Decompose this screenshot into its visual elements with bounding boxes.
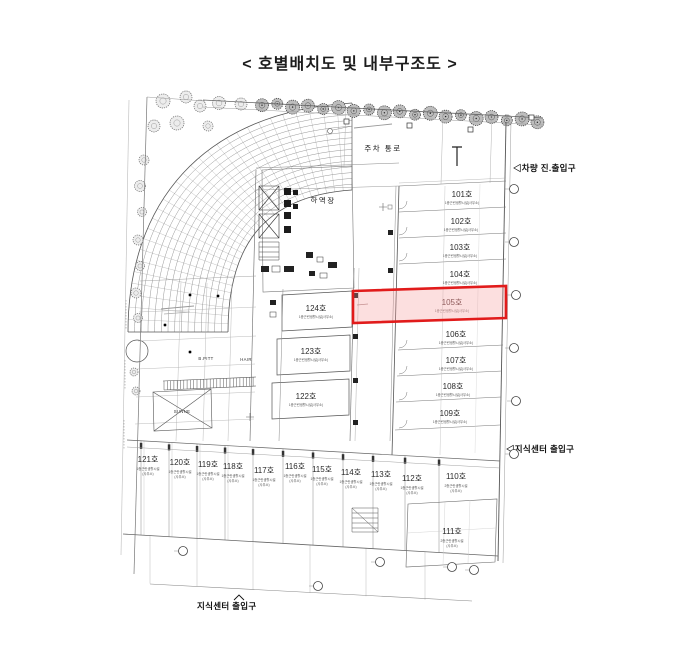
unit-121-sublabel: 1종근린생활시설 — [136, 466, 159, 471]
unit-114-label: 114호 — [341, 468, 361, 477]
unit-104-label: 104호 — [450, 270, 471, 279]
tenant-bpitt-label: B.PITT — [198, 356, 213, 361]
unit-113-label: 113호 — [371, 470, 391, 479]
unit-121-label: 121호 — [138, 455, 159, 464]
unit-110-sublabel2: (사무소) — [450, 488, 461, 493]
tenant-sunne-label: SUNNE — [174, 409, 191, 414]
unit-120-label: 120호 — [170, 458, 191, 467]
unit-110-sublabel: 2종근린생활시설 — [444, 483, 467, 488]
unit-118-sublabel: 1종근린생활시설 — [221, 473, 244, 478]
unit-111-sublabel2: (사무소) — [446, 543, 457, 548]
unit-124-label: 124호 — [306, 304, 327, 313]
unit-119-label: 119호 — [198, 460, 218, 469]
unit-122-sublabel: 1종근린생활시설(사무소) — [289, 402, 323, 407]
parking-corridor-label: 주차 통로 — [364, 144, 401, 153]
unit-114-sublabel2: (사무소) — [345, 484, 356, 489]
site-decoration — [126, 91, 544, 600]
unit-104-sublabel: 1종근린생활시설(사무소) — [443, 280, 477, 285]
unit-117-label: 117호 — [254, 466, 274, 475]
unit-120-sublabel2: (사무소) — [174, 474, 185, 479]
unit-114-sublabel: 1종근린생활시설 — [339, 479, 362, 484]
unit-116-sublabel2: (사무소) — [289, 478, 300, 483]
unit-101-sublabel: 1종근린생활시설(사무소) — [445, 200, 479, 205]
unit-121-sublabel2: (사무소) — [142, 471, 153, 476]
unit-106-label: 106호 — [446, 330, 467, 339]
unit-115-sublabel: 1종근린생활시설 — [310, 476, 333, 481]
unit-112-sublabel2: (사무소) — [406, 490, 417, 495]
floorplan-drawing: 주차 통로 하역장 101호 1종근린생활시설(사무소) 102호 1종근린생활… — [0, 0, 700, 670]
unit-116-sublabel: 1종근린생활시설 — [283, 473, 306, 478]
unit-115-label: 115호 — [312, 465, 332, 474]
unit-101-label: 101호 — [452, 190, 473, 199]
vehicle-entrance-label: ◁차량 진.출입구 — [513, 163, 576, 173]
unit-118-label: 118호 — [223, 462, 243, 471]
unit-117-sublabel: 1종근린생활시설 — [252, 477, 275, 482]
unit-113-sublabel: 1종근린생활시설 — [369, 481, 392, 486]
unit-123-sublabel: 1종근린생활시설(사무소) — [294, 357, 328, 362]
unit-118-sublabel2: (사무소) — [227, 478, 238, 483]
unit-108-sublabel: 1종근린생활시설(사무소) — [436, 392, 470, 397]
unit-119-sublabel: 1종근린생활시설 — [196, 471, 219, 476]
center-entrance-bottom-label: 지식센터 출입구 — [197, 601, 257, 611]
floorplan-page: < 호별배치도 및 내부구조도 > — [0, 0, 700, 670]
unit-102-label: 102호 — [451, 217, 472, 226]
unit-120-sublabel: 1종근린생활시설 — [168, 469, 191, 474]
unit-105-highlight[interactable] — [353, 286, 506, 323]
unit-105-label: 105호 — [442, 298, 463, 307]
unit-109-label: 109호 — [440, 409, 461, 418]
unit-105-sublabel: 1종근린생활시설(사무소) — [435, 308, 469, 313]
unit-111-sublabel: 2종근린생활시설 — [440, 538, 463, 543]
unit-123-label: 123호 — [301, 347, 322, 356]
unit-103-sublabel: 1종근린생활시설(사무소) — [443, 253, 477, 258]
unit-103-label: 103호 — [450, 243, 471, 252]
unit-116-label: 116호 — [285, 462, 305, 471]
unit-113-sublabel2: (사무소) — [375, 486, 386, 491]
unit-107-sublabel: 1종근린생활시설(사무소) — [439, 366, 473, 371]
unit-117-sublabel2: (사무소) — [258, 482, 269, 487]
unit-124-sublabel: 1종근린생활시설(사무소) — [299, 314, 333, 319]
unit-108-label: 108호 — [443, 382, 464, 391]
unit-102-sublabel: 1종근린생활시설(사무소) — [444, 227, 478, 232]
unit-110-label: 110호 — [446, 472, 466, 481]
unit-106-sublabel: 1종근린생활시설(사무소) — [439, 340, 473, 345]
unit-112-label: 112호 — [402, 474, 422, 483]
unit-112-sublabel: 1종근린생활시설 — [400, 485, 423, 490]
tenant-hair-label: HAIR — [240, 357, 251, 362]
unit-107-label: 107호 — [446, 356, 467, 365]
loading-dock-label: 하역장 — [310, 195, 336, 206]
unit-115-sublabel2: (사무소) — [316, 481, 327, 486]
unit-119-sublabel2: (사무소) — [202, 476, 213, 481]
plan-labels: 주차 통로 하역장 101호 1종근린생활시설(사무소) 102호 1종근린생활… — [136, 144, 575, 611]
unit-109-sublabel: 1종근린생활시설(사무소) — [433, 419, 467, 424]
unit-122-label: 122호 — [296, 392, 317, 401]
unit-111-label: 111호 — [442, 527, 462, 536]
entrance-direction-icon — [234, 595, 244, 600]
